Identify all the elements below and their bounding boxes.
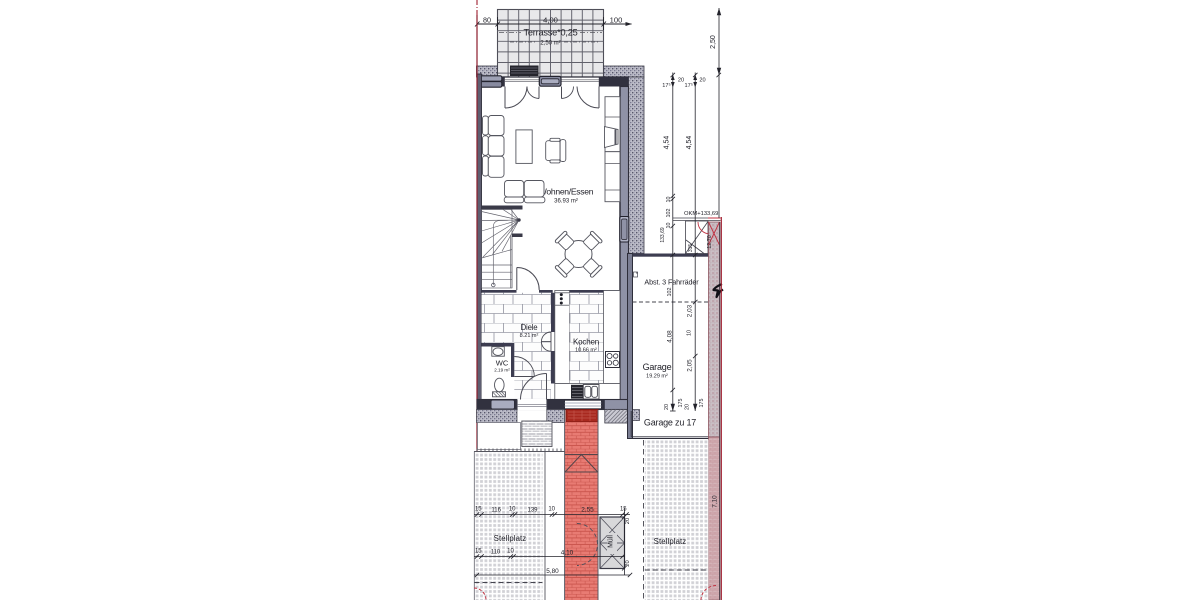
svg-text:WC: WC bbox=[496, 359, 509, 368]
svg-text:5,80: 5,80 bbox=[546, 568, 559, 575]
svg-text:Müll: Müll bbox=[608, 535, 615, 548]
svg-text:Garage: Garage bbox=[643, 362, 672, 372]
svg-text:2,55: 2,55 bbox=[581, 507, 594, 514]
svg-text:8.21 m²: 8.21 m² bbox=[520, 333, 539, 339]
svg-text:20: 20 bbox=[678, 78, 684, 84]
svg-text:12,70: 12,70 bbox=[707, 235, 713, 249]
svg-text:175: 175 bbox=[678, 399, 684, 408]
svg-text:20: 20 bbox=[685, 404, 691, 410]
svg-text:17⁵: 17⁵ bbox=[662, 82, 671, 89]
svg-text:2,03: 2,03 bbox=[687, 304, 694, 317]
svg-text:20: 20 bbox=[625, 518, 631, 524]
svg-text:4,54: 4,54 bbox=[686, 136, 693, 150]
svg-text:4,54: 4,54 bbox=[664, 136, 671, 150]
svg-text:Wohnen/Essen: Wohnen/Essen bbox=[539, 187, 594, 197]
svg-text:20: 20 bbox=[625, 560, 631, 566]
svg-text:175: 175 bbox=[699, 399, 705, 408]
svg-text:110: 110 bbox=[491, 550, 501, 556]
svg-text:19.29 m²: 19.29 m² bbox=[646, 374, 668, 380]
svg-text:15: 15 bbox=[475, 549, 482, 555]
svg-text:Stellplatz: Stellplatz bbox=[654, 537, 687, 546]
svg-text:2,05: 2,05 bbox=[687, 359, 694, 372]
svg-text:10: 10 bbox=[666, 197, 672, 203]
svg-text:Garage zu 17: Garage zu 17 bbox=[644, 418, 696, 428]
svg-text:4,00: 4,00 bbox=[543, 16, 558, 25]
svg-text:10: 10 bbox=[548, 507, 555, 513]
svg-text:Stellplatz: Stellplatz bbox=[494, 534, 527, 543]
svg-text:139: 139 bbox=[527, 508, 538, 514]
svg-text:Terrasse*0,25: Terrasse*0,25 bbox=[523, 28, 577, 38]
svg-text:102: 102 bbox=[666, 209, 672, 218]
svg-text:36.93 m²: 36.93 m² bbox=[554, 199, 578, 205]
svg-text:10: 10 bbox=[509, 507, 516, 513]
svg-text:Abst. 3 Fahrräder: Abst. 3 Fahrräder bbox=[644, 278, 699, 287]
svg-text:OKM+133,69: OKM+133,69 bbox=[684, 211, 718, 217]
svg-text:Diele: Diele bbox=[521, 323, 538, 332]
svg-text:102: 102 bbox=[667, 288, 673, 297]
svg-text:4,08: 4,08 bbox=[667, 330, 674, 343]
svg-text:15: 15 bbox=[620, 507, 627, 513]
svg-text:315: 315 bbox=[688, 244, 694, 253]
svg-text:80: 80 bbox=[483, 16, 491, 25]
svg-text:17⁵: 17⁵ bbox=[685, 82, 694, 89]
svg-text:7,10: 7,10 bbox=[712, 495, 719, 508]
svg-text:133,69: 133,69 bbox=[660, 227, 666, 243]
svg-text:116: 116 bbox=[491, 508, 501, 514]
svg-text:20: 20 bbox=[699, 78, 705, 84]
svg-text:2,50 m²: 2,50 m² bbox=[540, 41, 560, 47]
svg-text:4,10: 4,10 bbox=[561, 550, 574, 557]
svg-text:100: 100 bbox=[610, 16, 623, 25]
svg-text:15: 15 bbox=[475, 507, 482, 513]
svg-text:Kochen: Kochen bbox=[573, 338, 599, 347]
svg-text:2,50: 2,50 bbox=[710, 35, 717, 49]
svg-text:10: 10 bbox=[666, 223, 672, 229]
svg-text:10: 10 bbox=[507, 549, 514, 555]
svg-text:2.19 m²: 2.19 m² bbox=[494, 368, 510, 373]
svg-text:10.66 m²: 10.66 m² bbox=[575, 348, 597, 354]
svg-text:10: 10 bbox=[687, 330, 693, 336]
svg-text:20: 20 bbox=[664, 404, 670, 410]
